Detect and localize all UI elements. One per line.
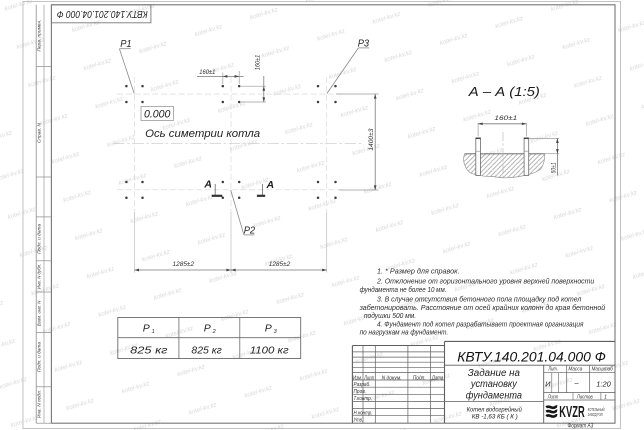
svg-text:50±1: 50±1 bbox=[550, 162, 557, 173]
svg-text:P: P bbox=[204, 322, 211, 334]
svg-text:Разраб.: Разраб. bbox=[354, 382, 371, 388]
svg-text:2: 2 bbox=[212, 329, 216, 335]
svg-text:Ось симетрии котла: Ось симетрии котла bbox=[145, 128, 260, 140]
svg-text:Справ. N: Справ. N bbox=[37, 122, 43, 143]
svg-text:0.000: 0.000 bbox=[144, 109, 171, 121]
svg-text:Перв. примен.: Перв. примен. bbox=[37, 20, 43, 52]
svg-text:Подп. и дата: Подп. и дата bbox=[37, 224, 43, 254]
svg-text:Дата: Дата bbox=[431, 375, 443, 381]
svg-text:Утв.: Утв. bbox=[354, 418, 364, 424]
svg-text:1: 1 bbox=[152, 329, 155, 335]
svg-text:КВ -1,63 КБ ( К ): КВ -1,63 КБ ( К ) bbox=[472, 414, 518, 421]
svg-text:Подп. и дата: Подп. и дата bbox=[37, 342, 43, 372]
svg-text:фундамента: фундамента bbox=[466, 389, 523, 401]
svg-text:ЗАВОД РЭП: ЗАВОД РЭП bbox=[588, 412, 603, 417]
svg-text:Задание на: Задание на bbox=[468, 368, 521, 379]
svg-text:Лист: Лист bbox=[547, 394, 559, 400]
svg-text:825 кг: 825 кг bbox=[191, 345, 221, 356]
svg-text:–: – bbox=[573, 378, 579, 387]
svg-text:Подп.: Подп. bbox=[413, 375, 426, 381]
svg-text:1: 1 bbox=[604, 394, 607, 400]
svg-text:1:20: 1:20 bbox=[596, 379, 611, 388]
svg-text:KVZR: KVZR bbox=[559, 404, 584, 421]
svg-text:Котел водогрейный: Котел водогрейный bbox=[467, 407, 523, 414]
svg-text:N докум.: N докум. bbox=[382, 375, 402, 381]
svg-text:Н.контр.: Н.контр. bbox=[354, 410, 373, 416]
svg-text:А: А bbox=[266, 179, 275, 191]
svg-text:P2: P2 bbox=[244, 225, 256, 237]
svg-text:Лист: Лист bbox=[363, 375, 374, 381]
svg-text:Пров.: Пров. bbox=[354, 389, 367, 395]
svg-text:Масштаб: Масштаб bbox=[592, 367, 614, 373]
svg-text:P1: P1 bbox=[120, 38, 131, 50]
svg-text:1285±2: 1285±2 bbox=[173, 261, 195, 268]
svg-text:Изм.: Изм. bbox=[353, 375, 362, 381]
svg-text:160±1: 160±1 bbox=[199, 69, 215, 76]
svg-text:Формат А3: Формат А3 bbox=[568, 423, 594, 429]
svg-text:А: А bbox=[203, 179, 212, 191]
svg-text:1285±2: 1285±2 bbox=[269, 261, 291, 268]
svg-text:160±1: 160±1 bbox=[255, 54, 262, 70]
svg-text:фундамента не более 10 мм.: фундамента не более 10 мм. bbox=[360, 285, 447, 294]
svg-text:P3: P3 bbox=[358, 37, 370, 49]
svg-text:КВТУ.140.201.04.000 Ф: КВТУ.140.201.04.000 Ф bbox=[57, 8, 148, 20]
svg-text:И: И bbox=[545, 379, 551, 388]
svg-text:825 кг: 825 кг bbox=[130, 345, 167, 356]
svg-text:P: P bbox=[265, 322, 272, 334]
svg-text:Лит.: Лит. bbox=[548, 367, 558, 373]
svg-text:1100 кг: 1100 кг bbox=[250, 345, 289, 356]
svg-text:Взам. инв. N: Взам. инв. N bbox=[37, 300, 42, 326]
svg-text:Инв. N дубл.: Инв. N дубл. bbox=[37, 264, 42, 289]
svg-text:КВТУ.140.201.04.000 Ф: КВТУ.140.201.04.000 Ф bbox=[457, 348, 606, 364]
svg-text:А – А (1:5): А – А (1:5) bbox=[468, 84, 540, 99]
svg-text:по нагрузкам на фундамент.: по нагрузкам на фундамент. bbox=[360, 328, 449, 337]
svg-text:Инв. N подл.: Инв. N подл. bbox=[37, 390, 43, 418]
svg-text:Листов: Листов bbox=[576, 394, 593, 400]
svg-text:установку: установку bbox=[470, 379, 518, 390]
svg-text:P: P bbox=[143, 322, 150, 334]
svg-text:Т.контр.: Т.контр. bbox=[354, 396, 373, 402]
svg-text:160±1: 160±1 bbox=[494, 115, 517, 122]
svg-text:Масса: Масса bbox=[568, 367, 582, 373]
svg-text:1400±3: 1400±3 bbox=[368, 128, 375, 150]
svg-text:1. * Размер для справок.: 1. * Размер для справок. bbox=[377, 266, 460, 275]
